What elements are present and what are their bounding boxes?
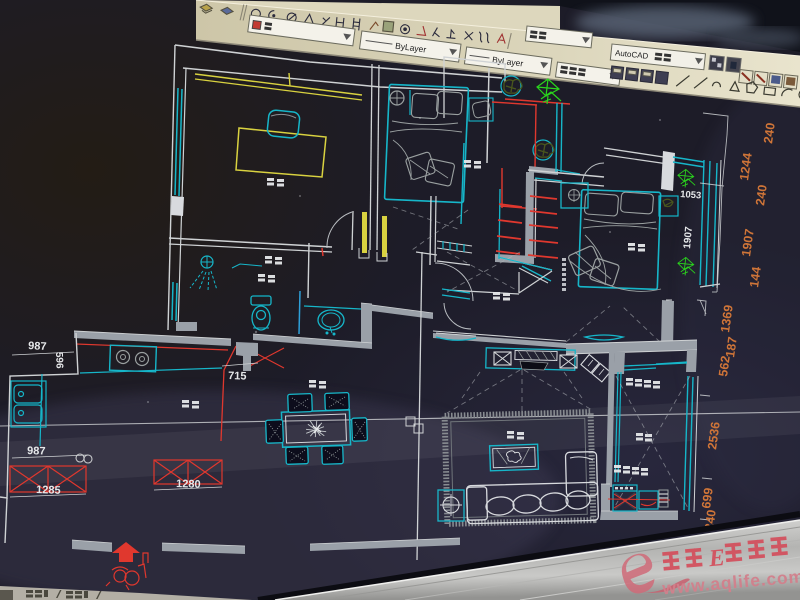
svg-text:E: E (707, 545, 726, 572)
svg-text:240: 240 (753, 184, 770, 207)
svg-text:987: 987 (27, 445, 46, 458)
svg-text:144: 144 (747, 266, 764, 289)
svg-text:596: 596 (53, 352, 65, 369)
svg-text:1053: 1053 (680, 189, 702, 201)
svg-text:699: 699 (699, 487, 716, 510)
svg-text:240: 240 (761, 122, 778, 145)
svg-text:187: 187 (723, 336, 740, 359)
svg-text:1907: 1907 (682, 226, 695, 250)
svg-text:715: 715 (228, 370, 247, 383)
svg-text:562: 562 (716, 355, 733, 378)
svg-text:987: 987 (28, 340, 47, 353)
